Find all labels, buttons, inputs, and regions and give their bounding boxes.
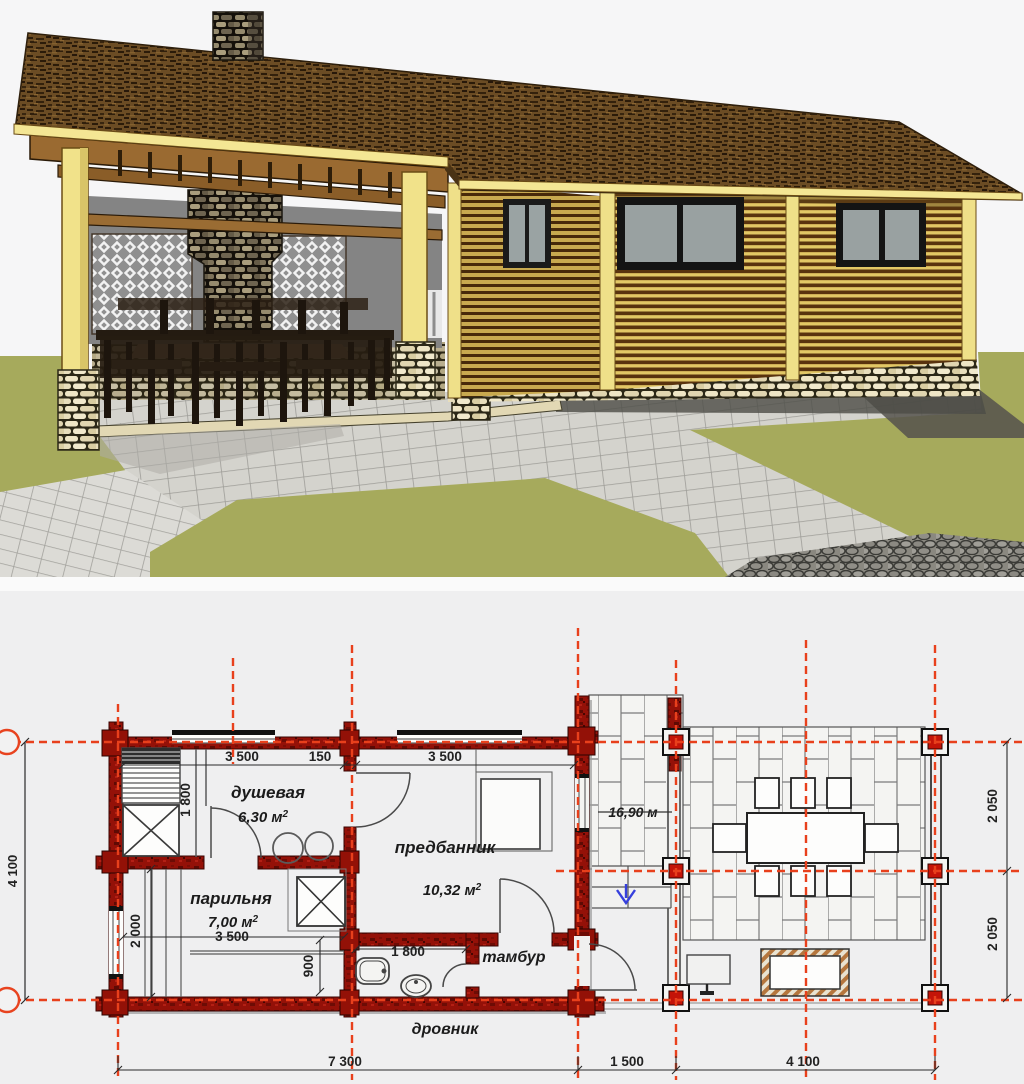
svg-text:дровник: дровник	[412, 1021, 480, 1038]
svg-text:душевая: душевая	[231, 783, 305, 802]
svg-text:150: 150	[309, 749, 332, 764]
svg-text:7 300: 7 300	[328, 1054, 362, 1069]
svg-text:10,32 м2: 10,32 м2	[423, 882, 482, 899]
svg-text:парильня: парильня	[190, 889, 272, 908]
svg-text:3 500: 3 500	[225, 749, 259, 764]
svg-text:3 500: 3 500	[215, 929, 249, 944]
svg-text:4 100: 4 100	[786, 1054, 820, 1069]
svg-text:2 000: 2 000	[128, 914, 143, 948]
svg-text:1 800: 1 800	[178, 783, 193, 817]
svg-text:2 050: 2 050	[985, 917, 1000, 951]
svg-text:предбанник: предбанник	[395, 838, 497, 857]
svg-text:900: 900	[301, 955, 316, 978]
svg-text:1 800: 1 800	[391, 944, 425, 959]
svg-text:3 500: 3 500	[428, 749, 462, 764]
svg-text:тамбур: тамбур	[482, 949, 545, 966]
svg-text:7,00 м2: 7,00 м2	[208, 914, 258, 931]
svg-text:4 100: 4 100	[5, 855, 20, 888]
svg-text:1 500: 1 500	[610, 1054, 644, 1069]
svg-text:2 050: 2 050	[985, 789, 1000, 823]
svg-text:6,30 м2: 6,30 м2	[238, 809, 288, 826]
